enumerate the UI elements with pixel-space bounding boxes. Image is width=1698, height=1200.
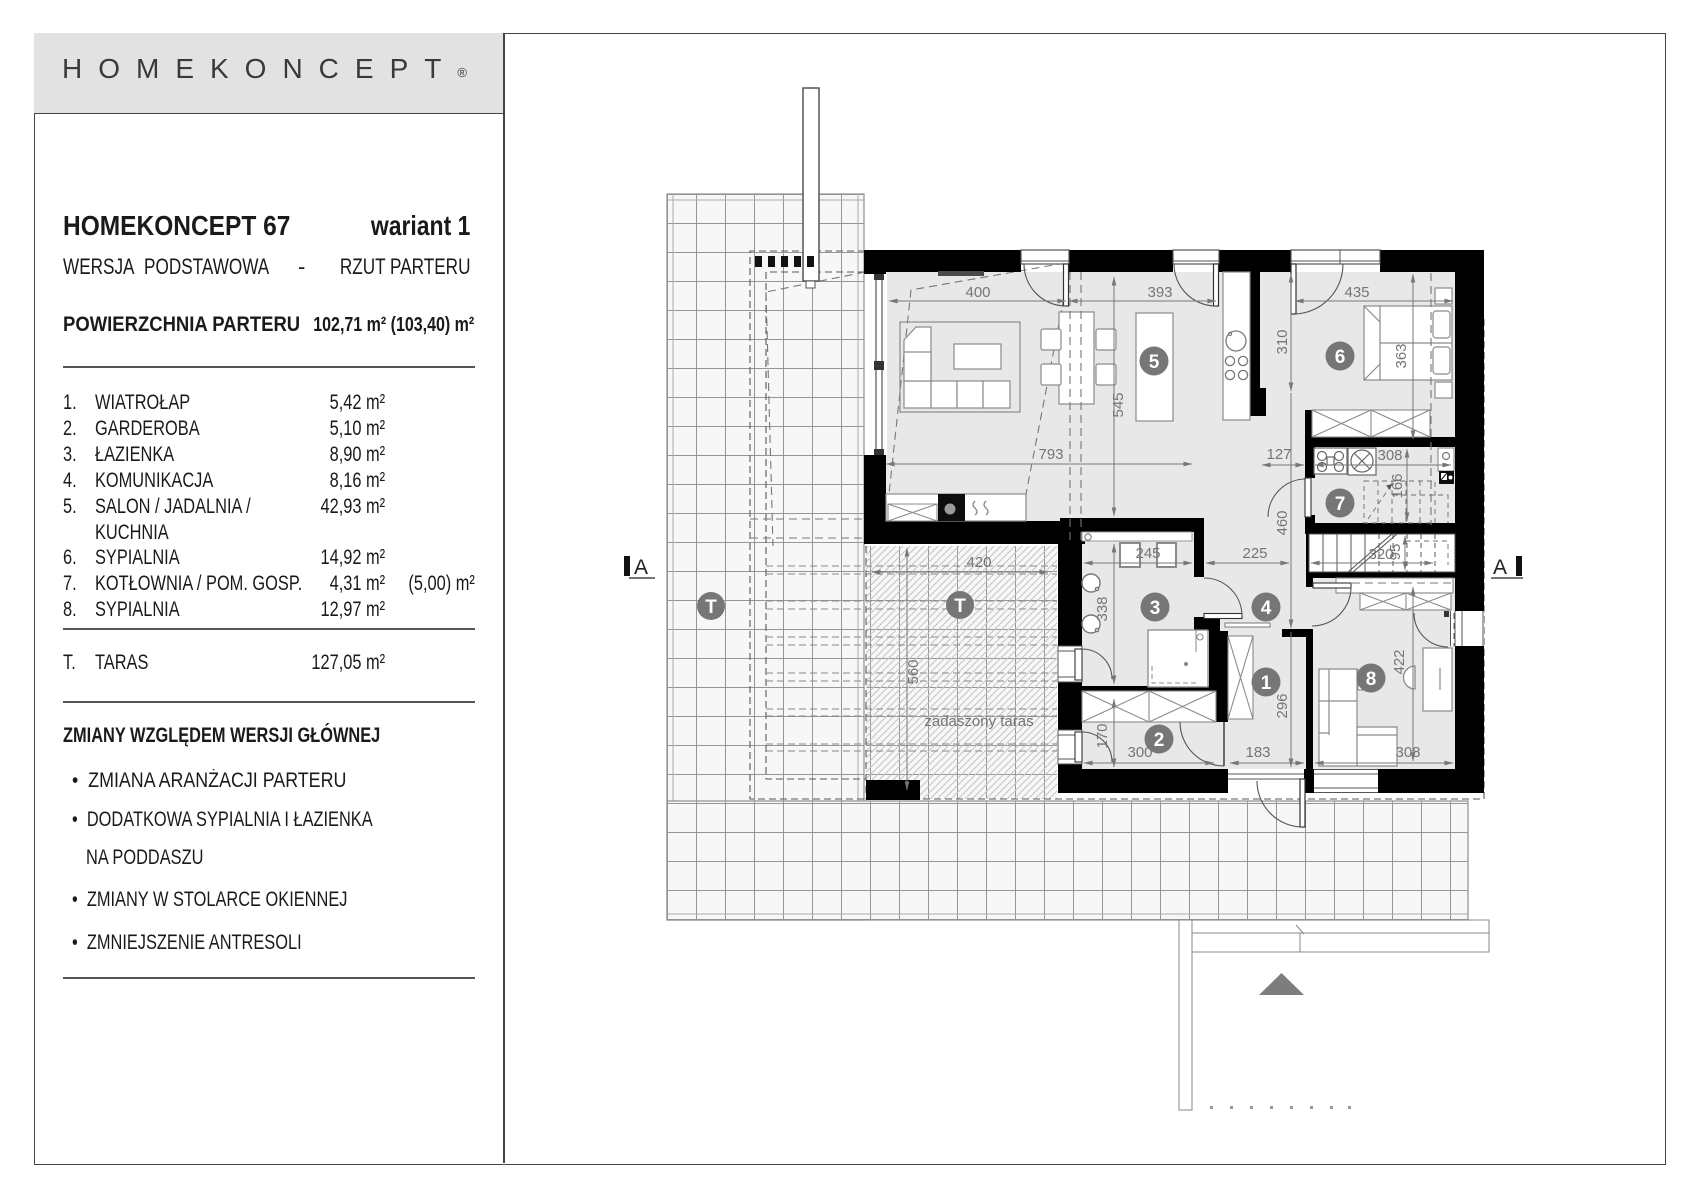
svg-text:7: 7	[1335, 494, 1346, 515]
svg-text:338: 338	[1094, 596, 1111, 621]
svg-text:183: 183	[1245, 744, 1270, 761]
svg-text:308: 308	[1395, 744, 1420, 761]
svg-text:T: T	[705, 597, 717, 618]
svg-text:296: 296	[1274, 693, 1291, 718]
svg-text:422: 422	[1391, 649, 1408, 674]
svg-text:T: T	[954, 596, 966, 617]
svg-text:8: 8	[1366, 669, 1377, 690]
svg-text:4: 4	[1261, 598, 1272, 619]
svg-text:560: 560	[905, 659, 922, 684]
svg-text:420: 420	[966, 554, 991, 571]
svg-text:1: 1	[1261, 673, 1272, 694]
svg-text:393: 393	[1147, 284, 1172, 301]
svg-text:363: 363	[1393, 343, 1410, 368]
svg-text:A: A	[1493, 556, 1507, 579]
svg-text:2: 2	[1154, 730, 1165, 751]
svg-text:95: 95	[1387, 544, 1404, 561]
svg-text:435: 435	[1344, 284, 1369, 301]
svg-text:3: 3	[1150, 598, 1161, 619]
svg-text:5: 5	[1149, 352, 1160, 373]
svg-text:A: A	[634, 556, 648, 579]
svg-text:170: 170	[1094, 723, 1111, 748]
svg-text:6: 6	[1335, 347, 1346, 368]
svg-text:225: 225	[1242, 545, 1267, 562]
svg-text:460: 460	[1274, 510, 1291, 535]
svg-text:zadaszony taras: zadaszony taras	[924, 713, 1033, 730]
svg-text:166: 166	[1389, 473, 1406, 498]
svg-text:308: 308	[1377, 447, 1402, 464]
svg-text:793: 793	[1038, 446, 1063, 463]
svg-text:310: 310	[1274, 329, 1291, 354]
svg-text:545: 545	[1110, 392, 1127, 417]
svg-text:127: 127	[1266, 446, 1291, 463]
svg-text:400: 400	[965, 284, 990, 301]
svg-text:245: 245	[1135, 545, 1160, 562]
